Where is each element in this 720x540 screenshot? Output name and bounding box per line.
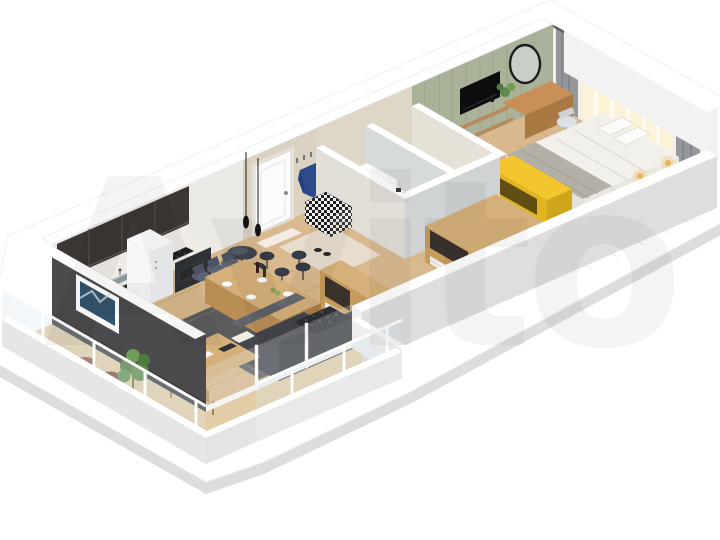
wine-bottle [256, 262, 259, 273]
wine-bottle [263, 266, 266, 277]
door-handle [284, 191, 288, 195]
slipper [314, 248, 322, 252]
floorplan-image: Avito [0, 0, 720, 540]
fridge [127, 229, 173, 304]
slipper [323, 252, 331, 256]
figurine [490, 98, 494, 102]
round-mirror [510, 45, 540, 83]
floorplan-render [0, 0, 720, 540]
